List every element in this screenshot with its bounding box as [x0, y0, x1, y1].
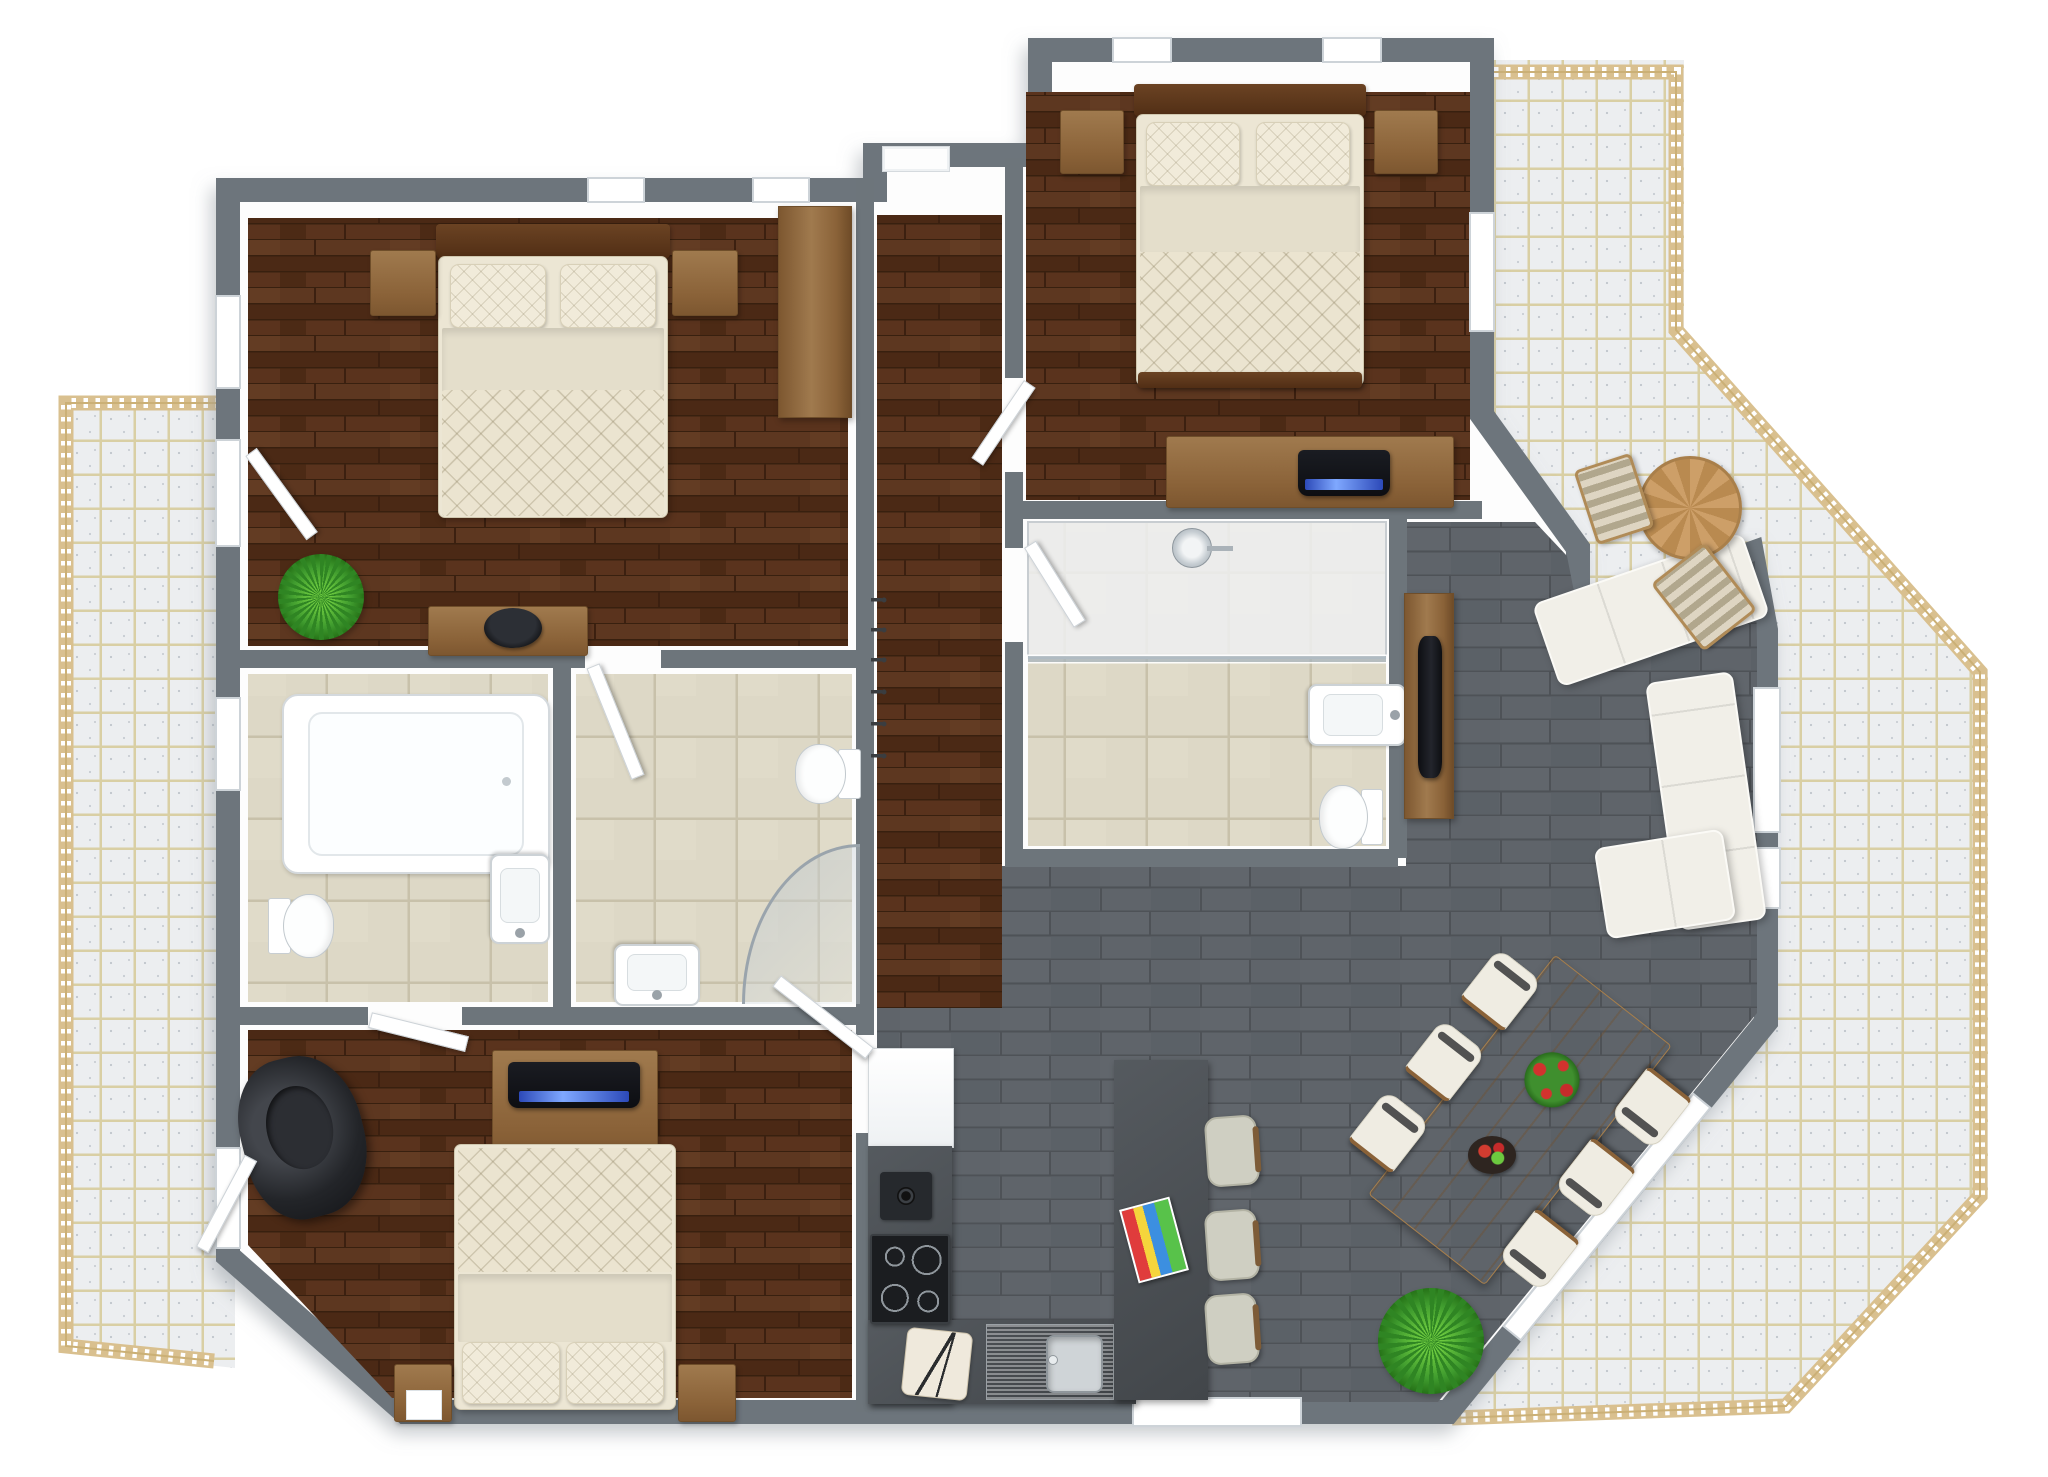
bar-stool-3	[1204, 1292, 1261, 1365]
door-leaf-bedroom2	[971, 380, 1035, 466]
door-leaf-bedroom3-balcony	[196, 1155, 257, 1253]
door-leaf-bathroom-middle	[587, 663, 645, 780]
bar-stool-2	[1204, 1208, 1261, 1281]
bed-3-sheet	[458, 1274, 672, 1342]
plant-bedroom1	[278, 554, 364, 640]
balcony-chair-1	[1573, 453, 1654, 546]
toilet-bathroom-middle	[795, 739, 861, 807]
corner-shower-bathroom-middle	[742, 844, 860, 1004]
bed-2-quilt	[1140, 252, 1360, 374]
floor-plan-render	[0, 0, 2048, 1477]
cooktop	[870, 1234, 950, 1324]
sink-bathroom-left	[490, 854, 550, 944]
shower-head-bathroom-right	[1172, 528, 1212, 568]
door-leaf-bedroom1-balcony	[245, 448, 317, 540]
toilet-bathroom-right	[1319, 779, 1383, 853]
laptop-bedroom2	[1298, 450, 1390, 496]
fridge	[868, 1048, 954, 1148]
bar-stool-1	[1204, 1114, 1261, 1187]
sink-bathroom-right	[1308, 684, 1406, 746]
tv-bedroom3	[508, 1062, 640, 1108]
sink-bathroom-middle	[614, 944, 700, 1006]
cutting-board	[901, 1327, 974, 1402]
bed-2-headboard	[1134, 84, 1366, 116]
bed-1-pillow-left	[450, 264, 546, 328]
tub-bathroom-left	[282, 694, 550, 874]
bed-2-sheet	[1140, 186, 1360, 252]
bed-2-footboard	[1138, 372, 1362, 388]
toilet-bathroom-left	[268, 890, 334, 964]
bed-1-sheet	[442, 328, 664, 392]
plant-living	[1378, 1288, 1484, 1394]
bed-1-pillow-right	[560, 264, 656, 328]
door-leaf-bathroom-left	[368, 1012, 469, 1052]
bed-3-pillow-left	[462, 1342, 560, 1404]
box-on-nightstand	[406, 1390, 442, 1420]
coffee-machine	[880, 1172, 932, 1220]
table-flowers	[1524, 1052, 1580, 1110]
nightstand-bed1-right	[672, 250, 738, 316]
shower-glass-bathroom-right	[1028, 656, 1386, 662]
bed-2-pillow-right	[1256, 122, 1350, 186]
furniture-layer	[0, 0, 2048, 1477]
nightstand-bed2-right	[1374, 110, 1438, 174]
bed-1-quilt	[442, 390, 664, 516]
nightstand-bed3-right	[678, 1364, 736, 1422]
tv-living	[1418, 636, 1442, 778]
bed-1-headboard	[436, 224, 670, 258]
door-leaf-bathroom-right	[1024, 541, 1086, 628]
entry-door	[882, 146, 950, 172]
armchair-bedroom3	[224, 1044, 382, 1231]
wardrobe-bedroom1	[778, 206, 852, 418]
kitchen-sink	[986, 1324, 1114, 1400]
nightstand-bed2-left	[1060, 110, 1124, 174]
bed-3-pillow-right	[566, 1342, 664, 1404]
nightstand-bed1-left	[370, 250, 436, 316]
bed-2-pillow-left	[1146, 122, 1240, 186]
balcony-round-table	[1638, 456, 1742, 560]
decor-bowl-bedroom1	[484, 608, 542, 648]
fruit-bowl	[1468, 1136, 1516, 1174]
bed-3-quilt	[458, 1148, 672, 1272]
